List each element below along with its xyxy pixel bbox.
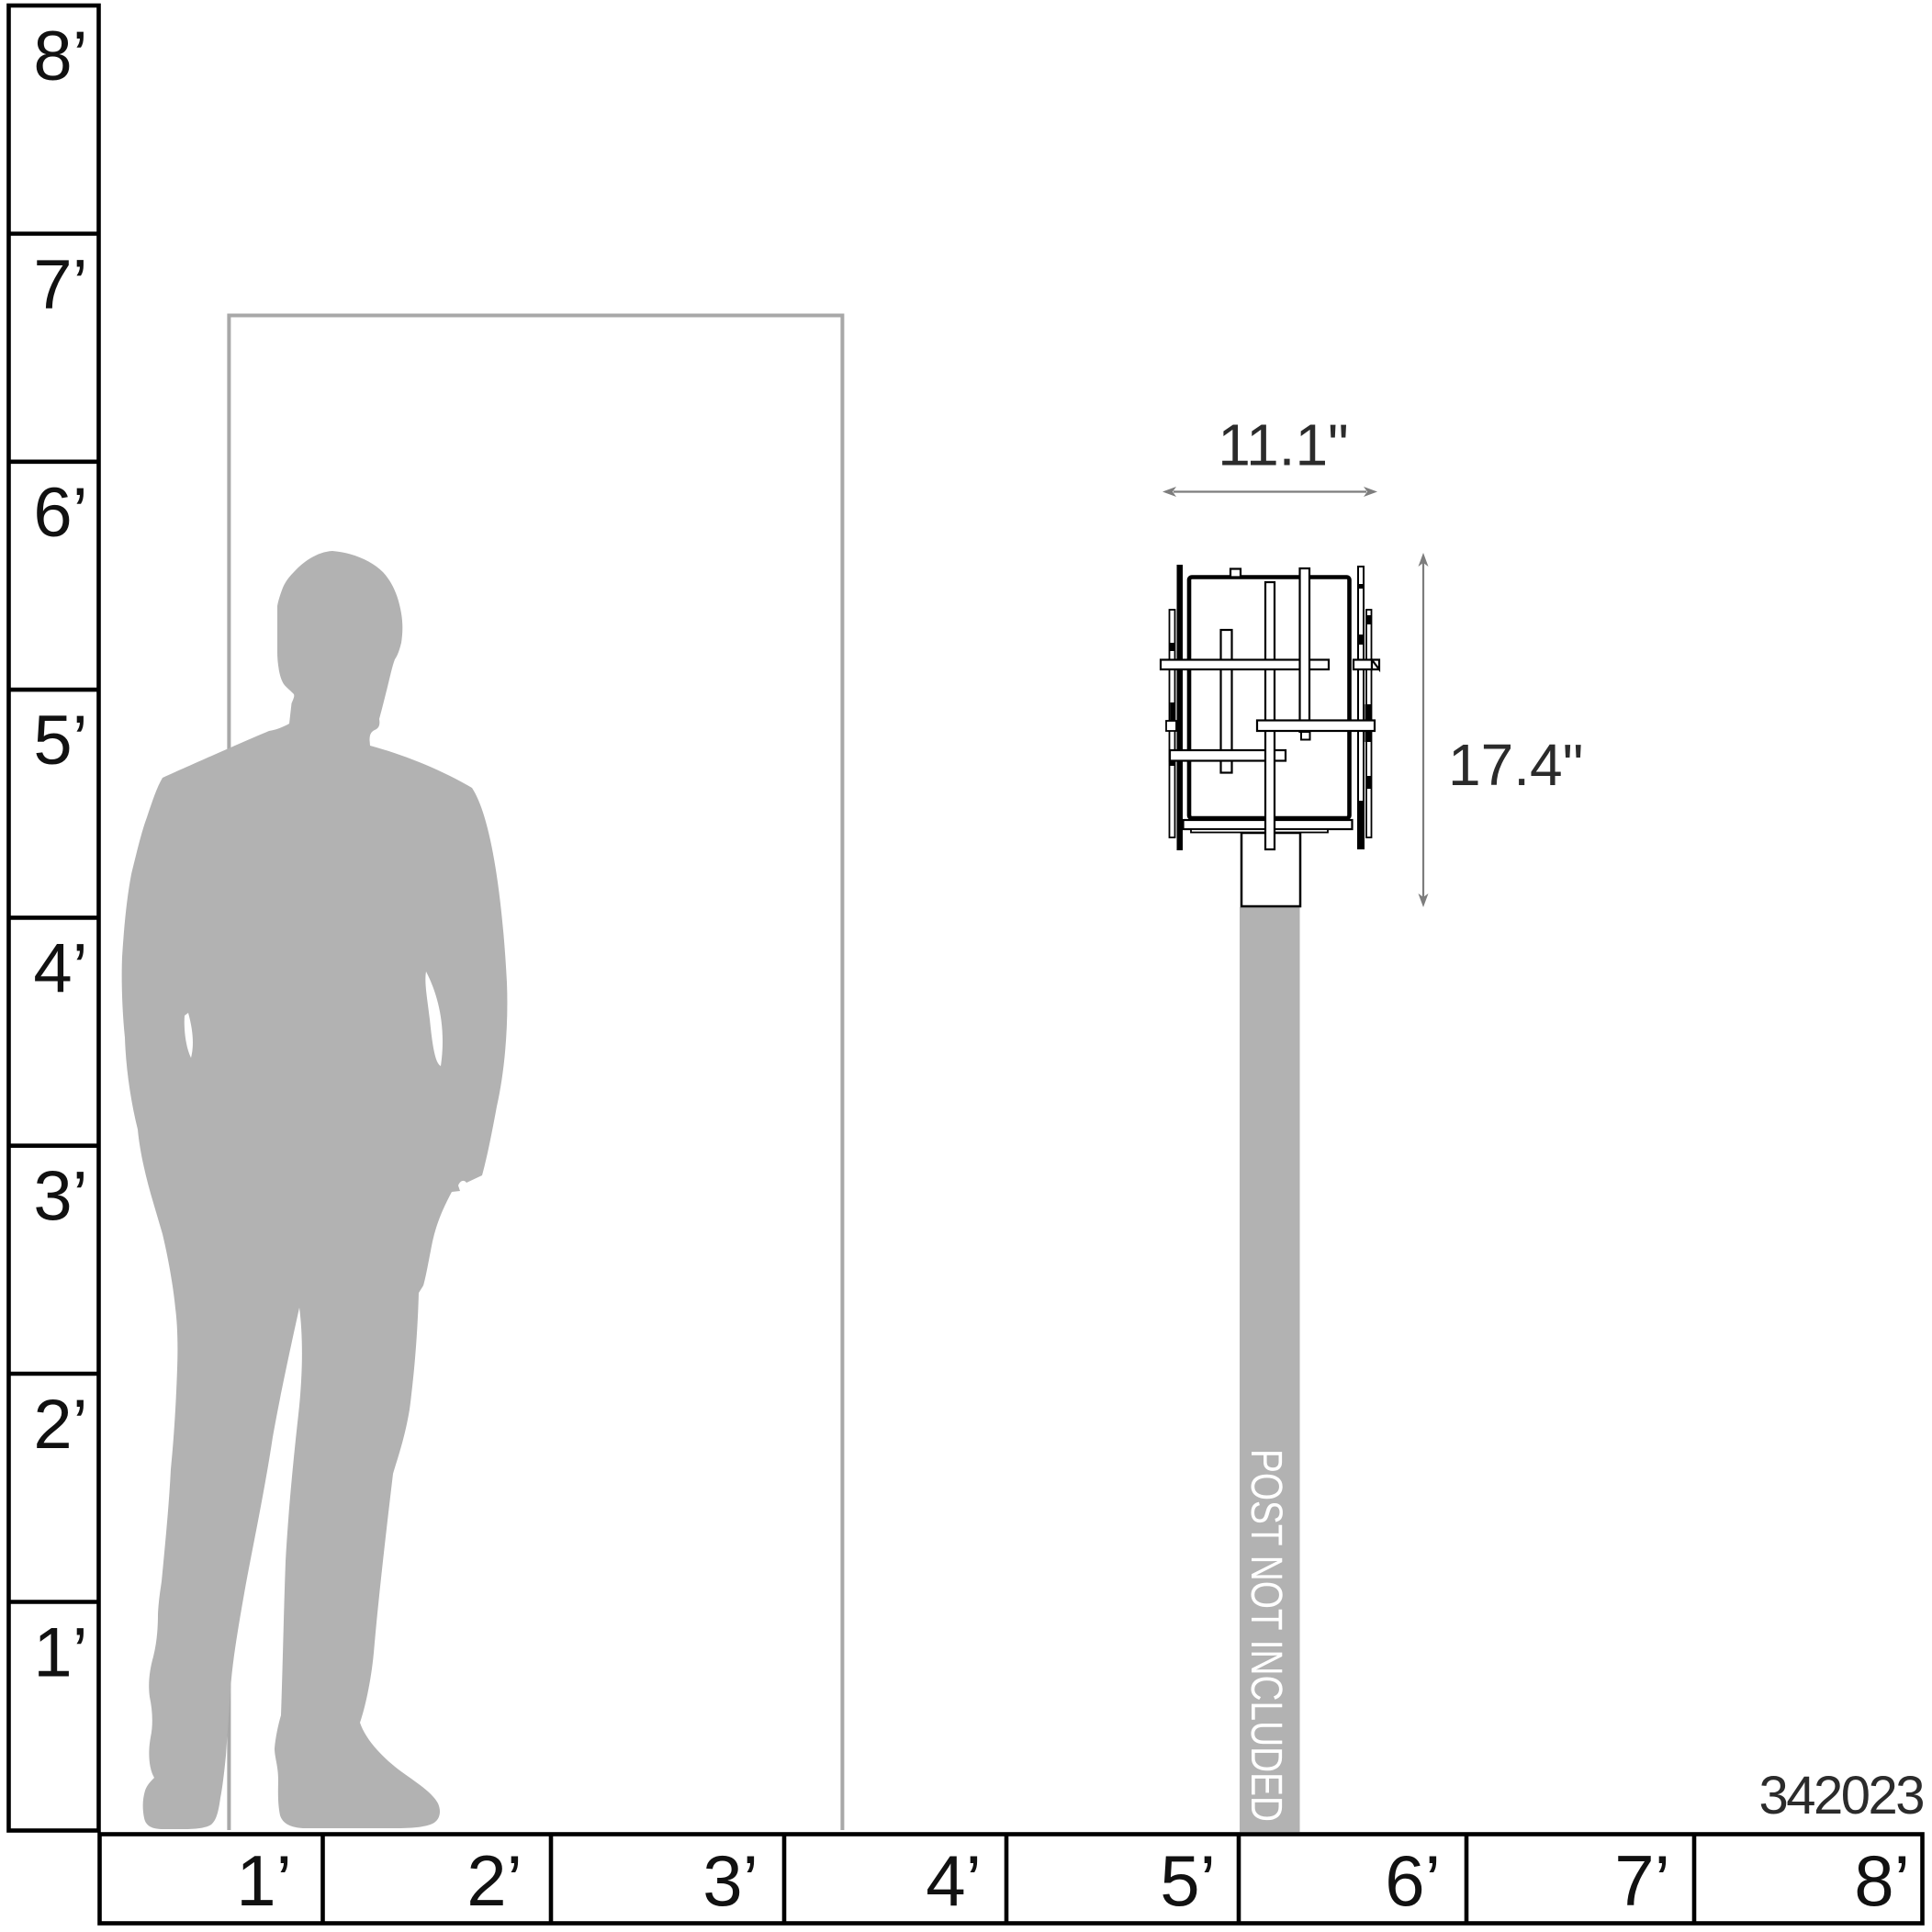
svg-text:5’: 5’	[33, 702, 87, 780]
svg-text:342023: 342023	[1758, 1766, 1923, 1825]
svg-text:11.1": 11.1"	[1218, 412, 1349, 478]
svg-text:POST NOT INCLUDED: POST NOT INCLUDED	[1241, 1449, 1290, 1822]
svg-text:4’: 4’	[33, 929, 87, 1007]
svg-text:8’: 8’	[1854, 1840, 1910, 1921]
svg-text:6’: 6’	[33, 474, 87, 552]
svg-text:1’: 1’	[33, 1614, 87, 1692]
svg-text:7’: 7’	[1614, 1840, 1670, 1921]
svg-text:6’: 6’	[1385, 1840, 1441, 1921]
svg-text:8’: 8’	[33, 17, 87, 95]
svg-text:1’: 1’	[236, 1840, 292, 1921]
svg-text:17.4": 17.4"	[1448, 732, 1583, 798]
svg-text:4’: 4’	[926, 1840, 982, 1921]
svg-text:3’: 3’	[33, 1158, 87, 1236]
svg-text:7’: 7’	[33, 246, 87, 324]
svg-text:2’: 2’	[466, 1840, 522, 1921]
svg-text:5’: 5’	[1160, 1840, 1216, 1921]
svg-text:3’: 3’	[702, 1840, 758, 1921]
svg-text:2’: 2’	[33, 1386, 87, 1464]
